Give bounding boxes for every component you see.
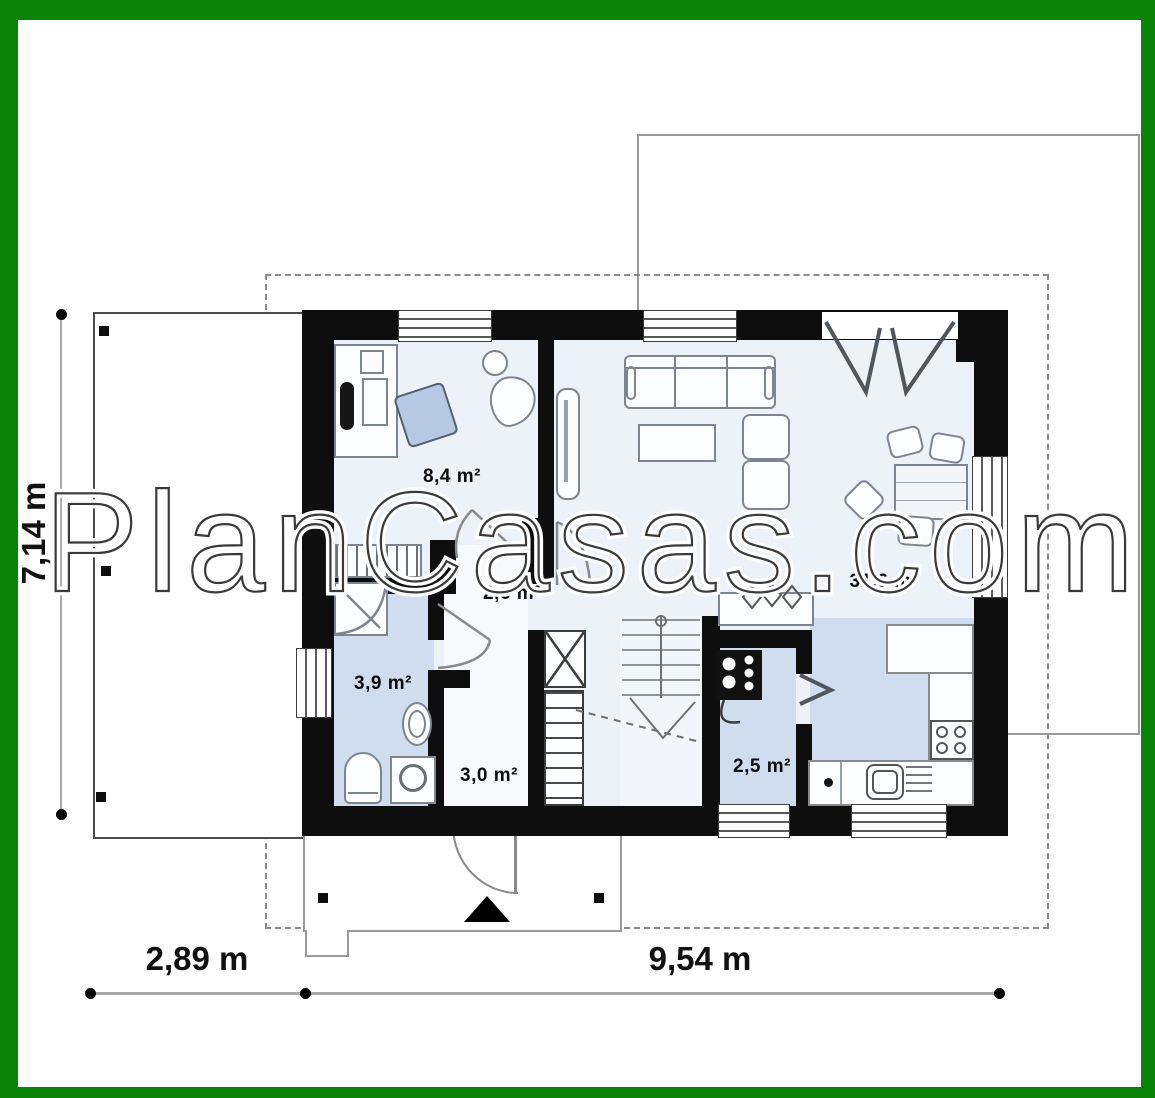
frame-border-top bbox=[0, 0, 1155, 20]
corridor-area-label: 3,0 m² bbox=[460, 765, 518, 787]
frame-border-right bbox=[1141, 0, 1155, 1098]
living-area-label: 31,6 m² bbox=[850, 571, 919, 593]
stairs-icon bbox=[576, 616, 700, 742]
stove-icon bbox=[716, 650, 762, 723]
decor-diamonds-icon bbox=[743, 584, 801, 608]
shower-tray-icon bbox=[336, 584, 386, 634]
frame-border-left bbox=[0, 0, 18, 1098]
bathroom-door-icon bbox=[438, 604, 490, 668]
hall-area-label: 2,6 m² bbox=[483, 583, 541, 605]
dimension-label-side: 7,14 m bbox=[15, 463, 53, 603]
double-door-leaves-icon bbox=[826, 322, 954, 392]
office-area-label: 8,4 m² bbox=[423, 466, 481, 488]
boiler-door-icon bbox=[800, 675, 831, 704]
vent-x-icon bbox=[546, 632, 584, 686]
frame-border-bottom bbox=[0, 1087, 1155, 1098]
office-door-icon bbox=[456, 510, 524, 558]
dimension-label-house: 9,54 m bbox=[620, 940, 780, 978]
boiler-area-label: 2,5 m² bbox=[733, 756, 791, 778]
living-door-icon bbox=[557, 522, 590, 585]
floor-plan-image: 8,4 m² 2,6 m² 3,9 m² 3,0 m² 2,5 m² 31,6 … bbox=[0, 0, 1155, 1098]
bathroom-area-label: 3,9 m² bbox=[354, 673, 412, 695]
dimension-label-carport: 2,89 m bbox=[117, 940, 277, 978]
